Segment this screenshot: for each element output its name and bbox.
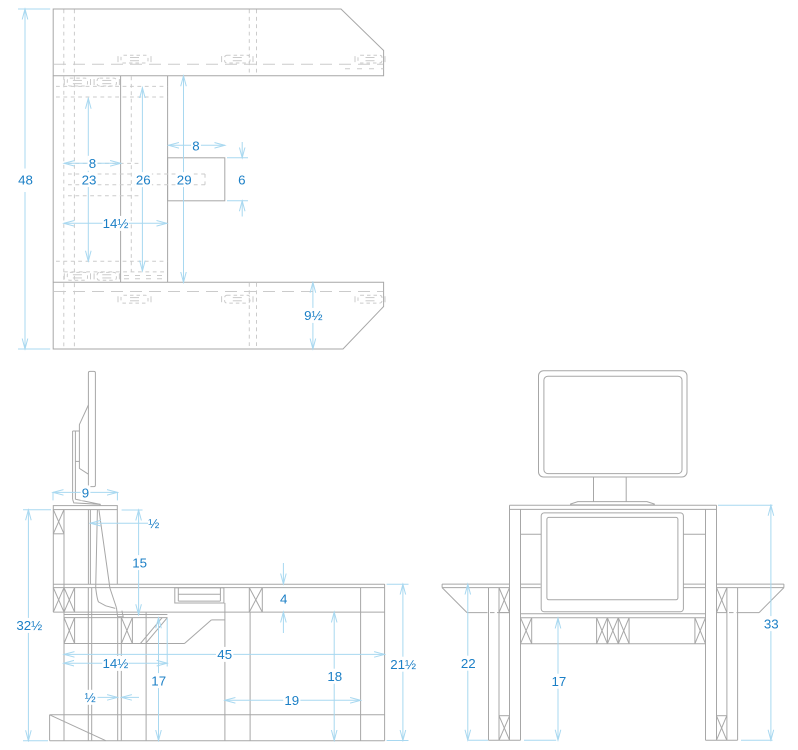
svg-text:21½: 21½ — [390, 657, 416, 672]
svg-text:6: 6 — [238, 172, 245, 187]
svg-text:14½: 14½ — [103, 216, 129, 231]
svg-text:9½: 9½ — [304, 308, 323, 323]
svg-text:18: 18 — [327, 669, 342, 684]
svg-text:½: ½ — [85, 690, 96, 705]
svg-text:9: 9 — [82, 486, 89, 501]
svg-text:½: ½ — [148, 516, 159, 531]
svg-text:17: 17 — [552, 674, 567, 689]
svg-text:8: 8 — [192, 138, 199, 153]
svg-text:45: 45 — [217, 647, 232, 662]
svg-text:29: 29 — [177, 172, 192, 187]
svg-text:32½: 32½ — [16, 618, 42, 633]
svg-text:48: 48 — [18, 173, 33, 188]
svg-text:19: 19 — [284, 693, 299, 708]
svg-text:17: 17 — [151, 673, 166, 688]
svg-text:4: 4 — [280, 592, 287, 607]
svg-text:26: 26 — [136, 172, 151, 187]
svg-text:8: 8 — [89, 156, 96, 171]
svg-text:14½: 14½ — [102, 656, 128, 671]
svg-text:23: 23 — [82, 172, 97, 187]
svg-text:15: 15 — [132, 555, 147, 570]
svg-text:22: 22 — [461, 656, 476, 671]
svg-text:33: 33 — [764, 616, 779, 631]
